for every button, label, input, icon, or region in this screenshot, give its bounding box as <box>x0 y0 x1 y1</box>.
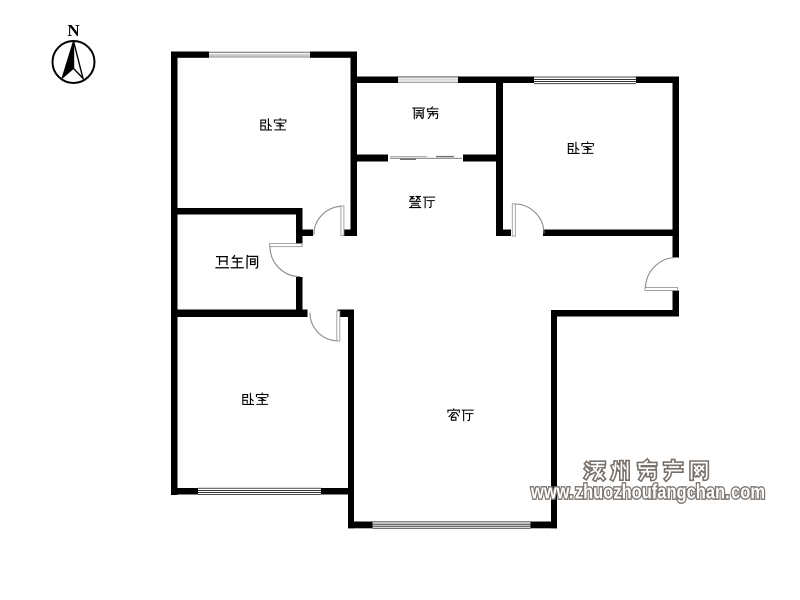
svg-text:N: N <box>67 21 80 40</box>
svg-text:www. zhuozhoufangchan. com: www. zhuozhoufangchan. com <box>530 482 765 504</box>
